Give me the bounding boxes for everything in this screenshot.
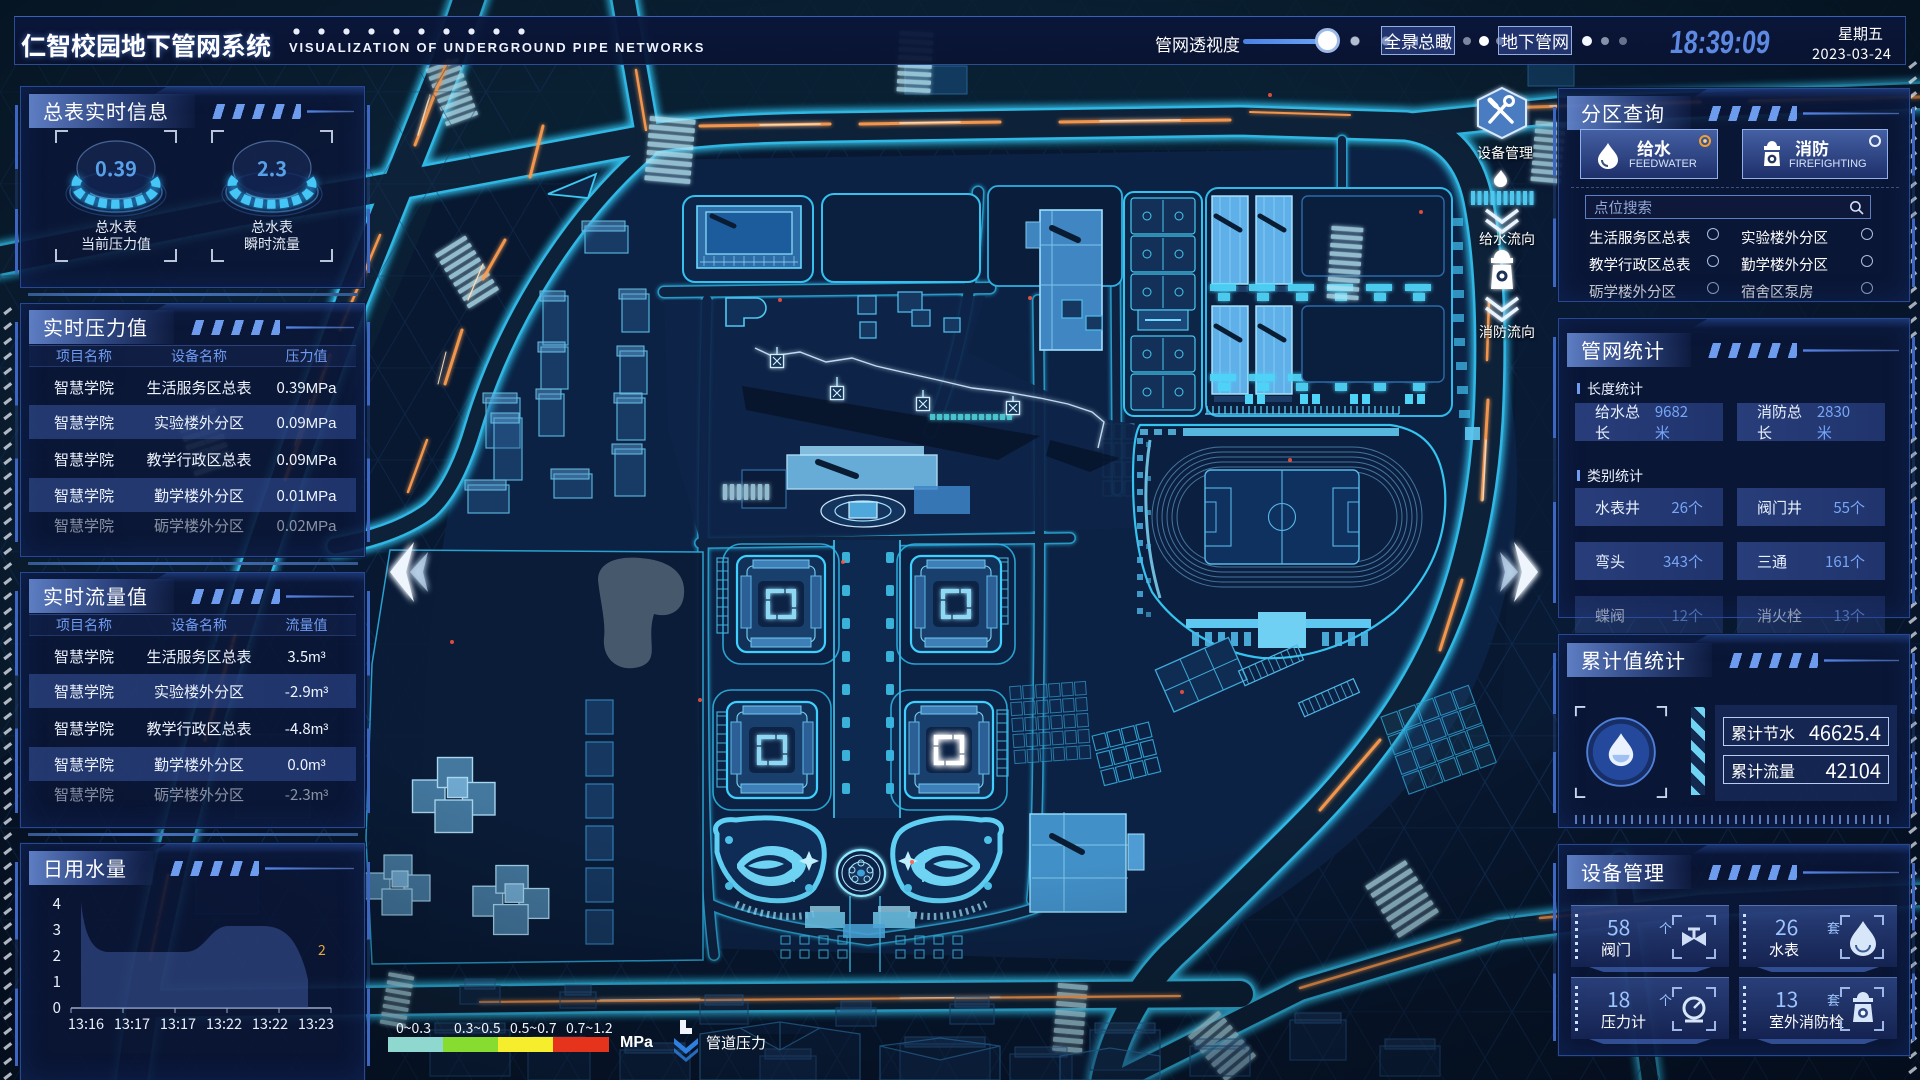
svg-text:2: 2 <box>318 940 326 960</box>
svg-text:3: 3 <box>53 919 61 940</box>
svg-text:13:23: 13:23 <box>298 1013 334 1034</box>
svg-text:13:16: 13:16 <box>68 1013 104 1034</box>
svg-text:当前压力值: 当前压力值 <box>81 234 151 254</box>
svg-text:瞬时流量: 瞬时流量 <box>244 234 300 254</box>
svg-text:2: 2 <box>53 945 61 966</box>
svg-text:2.3: 2.3 <box>257 153 287 182</box>
svg-text:4: 4 <box>53 893 61 914</box>
svg-text:13:17: 13:17 <box>114 1013 150 1034</box>
svg-text:13:22: 13:22 <box>252 1013 288 1034</box>
svg-text:1: 1 <box>53 971 61 992</box>
svg-text:13:22: 13:22 <box>206 1013 242 1034</box>
svg-text:13:17: 13:17 <box>160 1013 196 1034</box>
svg-text:0: 0 <box>53 997 61 1018</box>
svg-text:0.39: 0.39 <box>95 153 137 182</box>
